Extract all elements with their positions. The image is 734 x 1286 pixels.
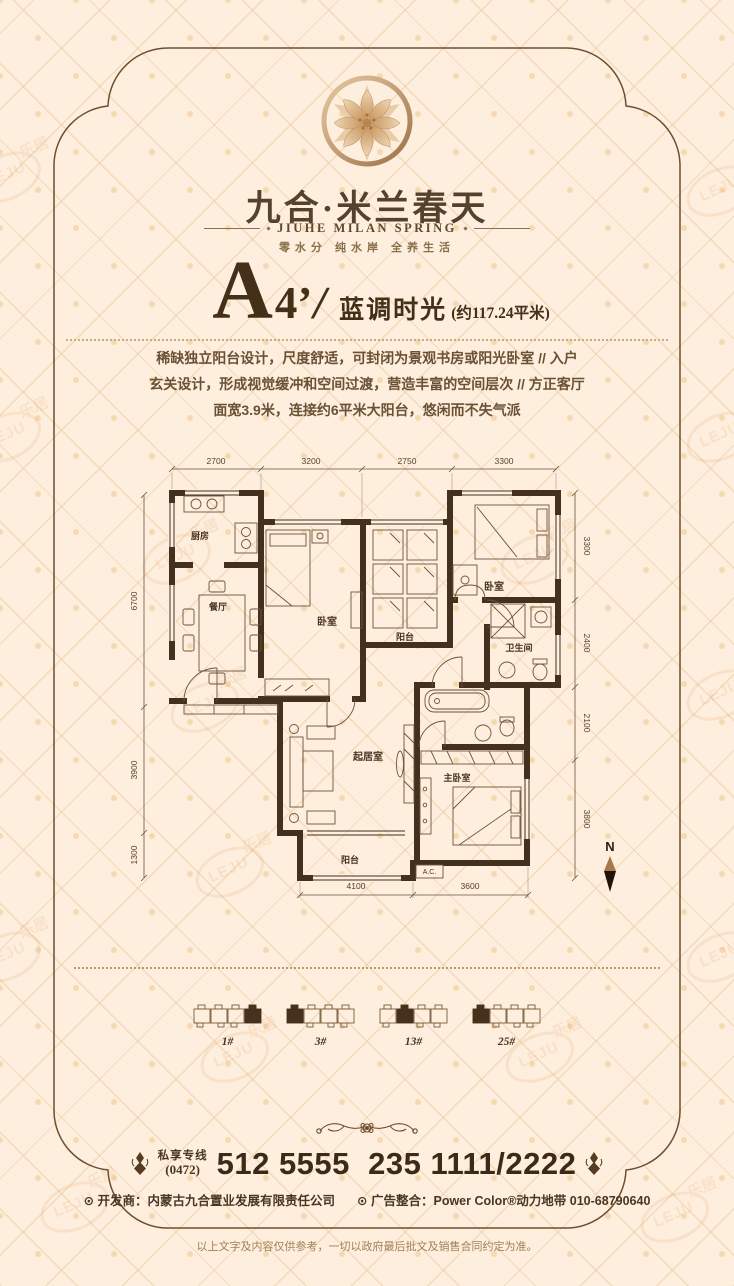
hotline-label-block: 私享专线 (0472) xyxy=(158,1150,208,1178)
developer-credit: ⊙ 开发商：内蒙古九合置业发展有限责任公司 xyxy=(84,1190,335,1209)
project-subtitle: JIUHE MILAN SPRING xyxy=(277,221,457,236)
flourish-divider xyxy=(312,1118,422,1140)
building-locator-row: 1# 3# 13# xyxy=(0,1002,734,1048)
building-footprint-icon xyxy=(378,1002,450,1032)
subtitle-dot xyxy=(463,226,467,230)
agency-credit: ⊙ 广告整合：Power Color®动力地带 010-68790640 xyxy=(357,1190,650,1209)
poster-canvas: LEJU乐居 LEJU乐居 LEJU乐居 LEJU乐居 LEJU乐居 LEJU乐… xyxy=(0,0,734,1286)
dim-top-3: 2750 xyxy=(398,456,417,466)
floorplan-walls xyxy=(172,493,558,878)
building-footprint-icon xyxy=(285,1002,357,1032)
compass-label: N xyxy=(605,839,614,854)
hotline-row: 私享专线 (0472) 512 5555 235 1111/2222 xyxy=(70,1146,664,1182)
unit-number: 4’ xyxy=(275,277,313,329)
unit-description: 稀缺独立阳台设计，尺度舒适，可封闭为景观书房或阳光卧室 // 入户 玄关设计，形… xyxy=(88,345,646,423)
room-label-bathroom: 卫生间 xyxy=(505,642,532,653)
dim-bottom-2: 3600 xyxy=(461,881,480,891)
hotline-phone-numbers: 512 5555 235 1111/2222 xyxy=(217,1146,577,1182)
project-subtitle-row: JIUHE MILAN SPRING xyxy=(0,221,734,236)
room-label-balcony-top: 阳台 xyxy=(396,631,414,642)
room-label-balcony-bottom: 阳台 xyxy=(341,854,359,865)
dim-right-2: 2400 xyxy=(582,634,592,653)
building-label: 1# xyxy=(222,1036,234,1048)
subtitle-line xyxy=(474,228,530,229)
dim-left-1: 6700 xyxy=(129,591,139,610)
credits-row: ⊙ 开发商：内蒙古九合置业发展有限责任公司 ⊙ 广告整合：Power Color… xyxy=(0,1190,734,1209)
dotted-divider xyxy=(66,339,668,341)
unit-area: (约117.24平米) xyxy=(451,301,550,323)
disclaimer-text: 以上文字及内容仅供参考，一切以政府最后批文及销售合同约定为准。 xyxy=(0,1238,734,1254)
room-label-dining: 餐厅 xyxy=(208,601,227,612)
building-item: 1# xyxy=(192,1002,264,1048)
fleur-ornament-icon xyxy=(585,1151,603,1177)
subtitle-line xyxy=(204,228,260,229)
hotline-area-code: (0472) xyxy=(158,1163,208,1178)
building-item: 13# xyxy=(378,1002,450,1048)
room-label-kitchen: 厨房 xyxy=(191,530,209,541)
dim-right-3: 2100 xyxy=(582,714,592,733)
dotted-divider xyxy=(74,967,660,969)
building-footprint-icon xyxy=(471,1002,543,1032)
dim-top-4: 3300 xyxy=(495,456,514,466)
room-label-bedroom-right: 卧室 xyxy=(484,580,504,593)
room-label-ac: A.C. xyxy=(423,869,437,876)
lotus-logo-icon xyxy=(312,66,422,176)
building-item: 25# xyxy=(471,1002,543,1048)
dim-left-3: 1300 xyxy=(129,845,139,864)
building-footprint-icon xyxy=(192,1002,264,1032)
room-label-bedroom-left: 卧室 xyxy=(317,615,337,628)
unit-heading: A 4’ / 蓝调时光 (约117.24平米) xyxy=(0,255,734,341)
unit-slash: / xyxy=(310,276,332,329)
subtitle-dot xyxy=(267,226,271,230)
dim-top-1: 2700 xyxy=(207,456,226,466)
fleur-ornament-icon xyxy=(131,1151,149,1177)
floor-plan: 2700 3200 2750 3300 6700 3900 1300 3300 … xyxy=(87,437,647,902)
room-label-master: 主卧室 xyxy=(443,772,470,783)
building-label: 13# xyxy=(405,1036,422,1048)
dim-left-2: 3900 xyxy=(129,760,139,779)
dim-right-1: 3300 xyxy=(582,537,592,556)
dim-top-2: 3200 xyxy=(302,456,321,466)
floorplan-doors xyxy=(184,585,514,747)
building-item: 3# xyxy=(285,1002,357,1048)
unit-name: 蓝调时光 xyxy=(339,290,447,326)
building-label: 3# xyxy=(315,1036,327,1048)
dim-bottom-1: 4100 xyxy=(347,881,366,891)
unit-letter: A xyxy=(212,255,273,326)
dim-right-4: 3800 xyxy=(582,810,592,829)
compass-icon: N xyxy=(604,839,616,892)
room-label-living: 起居室 xyxy=(352,750,383,763)
project-tagline: 零水分 纯水岸 全养生活 xyxy=(0,239,734,255)
building-label: 25# xyxy=(498,1036,515,1048)
